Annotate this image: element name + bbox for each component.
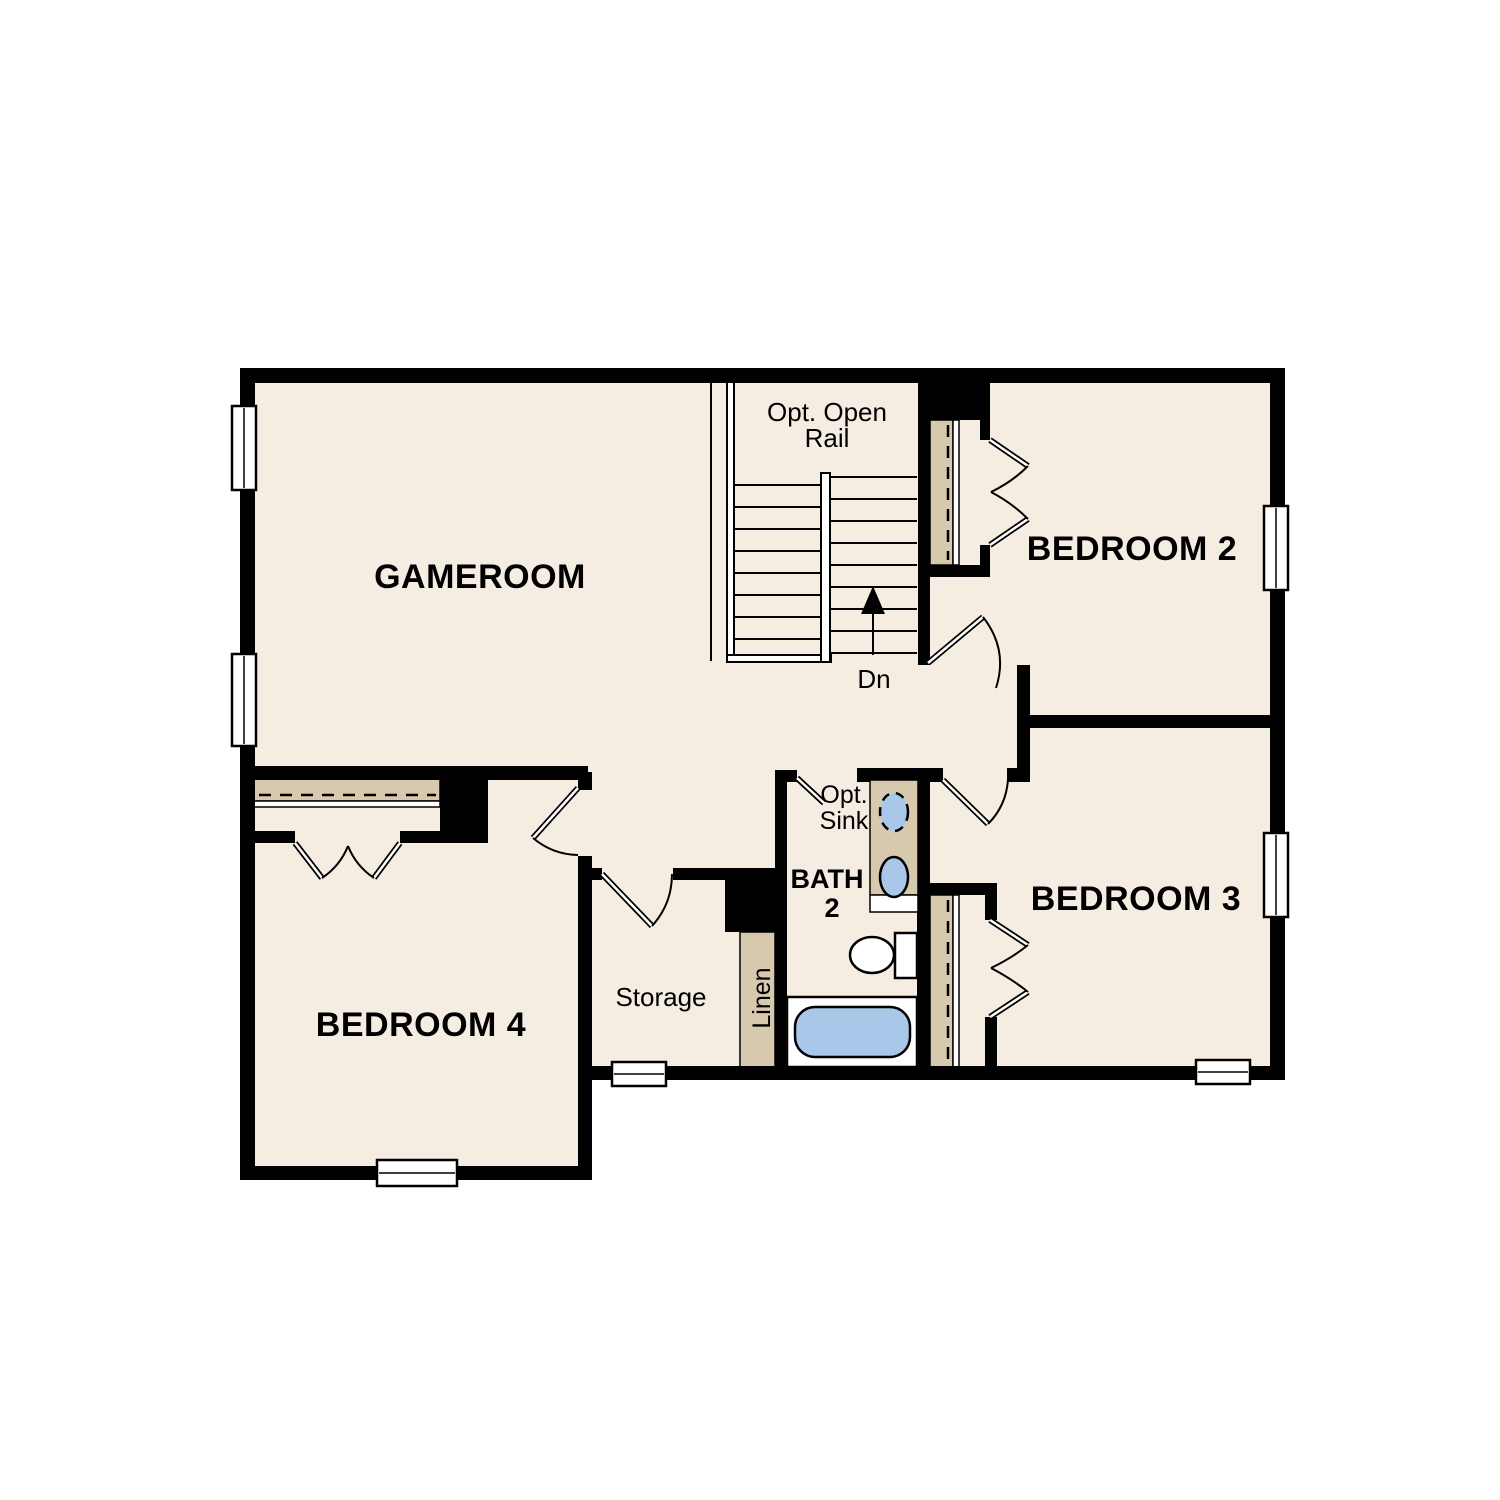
wall-bedroom2-bedroom3-divider <box>1017 715 1285 728</box>
floor-plan-drawing: GAMEROOM BEDROOM 2 BEDROOM 3 BEDROOM 4 S… <box>0 0 1500 1500</box>
bath2-label-line1: BATH <box>791 864 864 894</box>
vanity <box>870 780 918 912</box>
wall-bath-west <box>775 770 787 1067</box>
window-storage <box>612 1062 666 1086</box>
wall-bedroom4-east <box>578 856 592 1180</box>
wall-bath-north-stub <box>775 770 797 782</box>
bedroom3-label: BEDROOM 3 <box>1031 880 1241 918</box>
floor-plan-page: GAMEROOM BEDROOM 2 BEDROOM 3 BEDROOM 4 S… <box>0 0 1500 1500</box>
stair-rail-center <box>821 473 830 662</box>
wall-bedroom2-closet-stub-top <box>980 420 990 440</box>
bath2-label-line2: 2 <box>824 893 839 923</box>
bathtub <box>787 997 917 1067</box>
wall-bedroom3-closet-stub-top <box>985 895 997 920</box>
wall-bedroom2-closet-mass <box>918 368 990 420</box>
wall-storage-stub <box>578 868 602 880</box>
window-bedroom2 <box>1264 506 1288 590</box>
opt-sink-note-line2: Sink <box>820 807 869 835</box>
window-bedroom3-bottom <box>1196 1060 1250 1084</box>
optional-sink <box>880 793 908 831</box>
wall-bedroom2-closet-stub-bottom <box>980 545 990 568</box>
stair-direction-label: Dn <box>857 664 890 694</box>
bedroom4-closet-shelf <box>254 778 440 807</box>
wall-bedroom3-closet-stub-bottom <box>985 1017 997 1067</box>
wall-gameroom-south <box>240 766 588 780</box>
linen-label: Linen <box>748 967 776 1028</box>
bedroom2-label: BEDROOM 2 <box>1027 530 1237 568</box>
stair-rail-bottom <box>727 655 831 662</box>
bedroom4-label: BEDROOM 4 <box>316 1006 526 1044</box>
open-rail-note-line2: Rail <box>805 423 850 453</box>
opt-sink-note-line1: Opt. <box>820 781 867 809</box>
wall-exterior-bottom <box>578 1066 1285 1080</box>
sink <box>880 857 908 897</box>
wall-bedroom4-closet-mass <box>440 772 488 843</box>
window-gameroom-lower <box>232 654 256 746</box>
window-gameroom-upper <box>232 406 256 490</box>
wall-exterior-top <box>240 368 1285 383</box>
gameroom-label: GAMEROOM <box>374 558 586 596</box>
wall-stair-east <box>918 420 930 665</box>
stair-rail-left <box>727 380 734 662</box>
wall-bath-east <box>917 768 930 1067</box>
wall-bedroom4-closet-stub-left <box>254 831 295 843</box>
wall-bedroom4-closet-stub-right <box>400 831 440 843</box>
storage-label: Storage <box>615 982 706 1012</box>
bedroom3-closet-shelf <box>930 895 959 1067</box>
toilet <box>850 933 917 978</box>
wall-bedroom2-closet-bottom <box>927 565 990 577</box>
wall-bedroom3-closet-top <box>930 883 997 895</box>
bedroom2-closet-shelf <box>930 420 959 565</box>
window-bedroom3-right <box>1264 833 1288 917</box>
window-bedroom4 <box>377 1160 457 1186</box>
wall-storage-north <box>673 868 725 880</box>
